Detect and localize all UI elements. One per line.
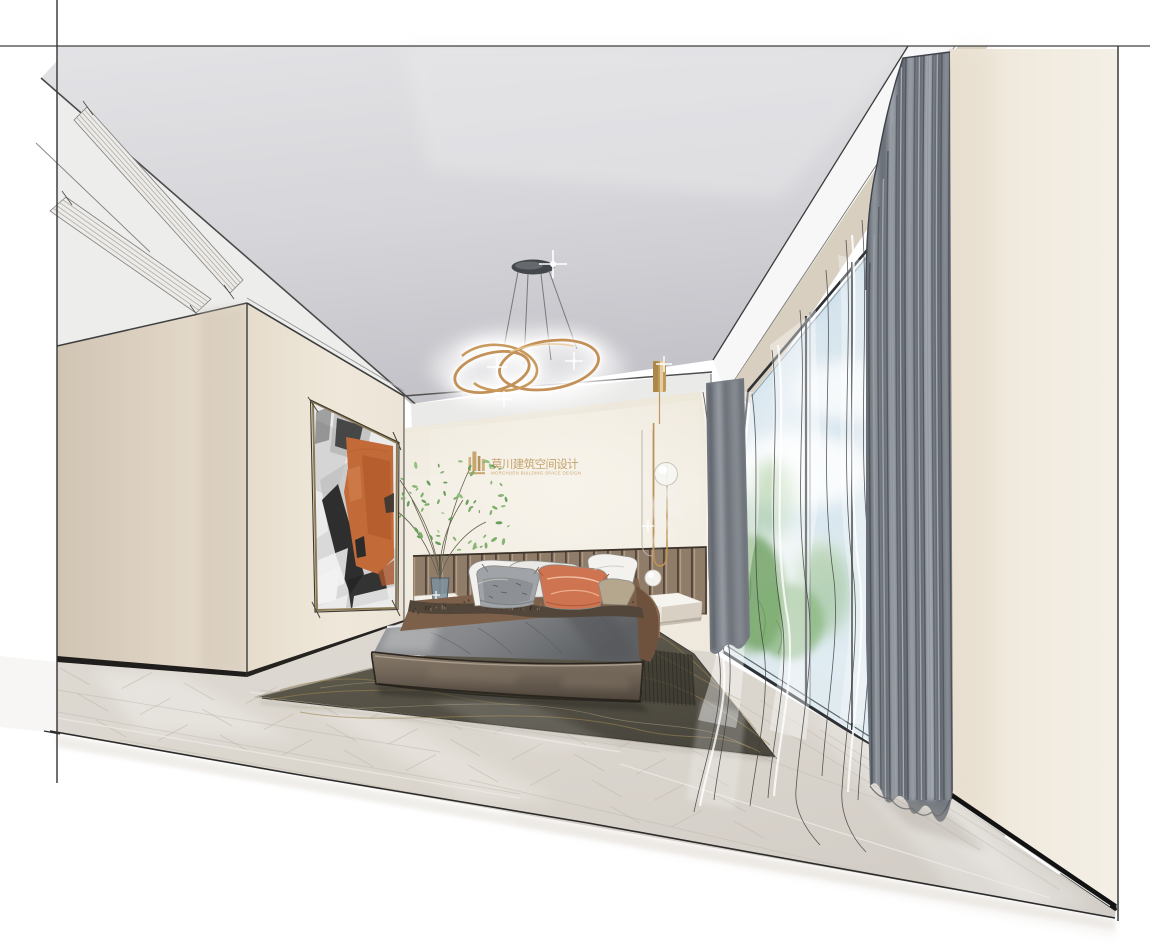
svg-text:MORCHUEN BUILDING SPACE DESIGN: MORCHUEN BUILDING SPACE DESIGN xyxy=(491,471,581,476)
svg-text:莫川建筑空间设计: 莫川建筑空间设计 xyxy=(491,457,579,471)
